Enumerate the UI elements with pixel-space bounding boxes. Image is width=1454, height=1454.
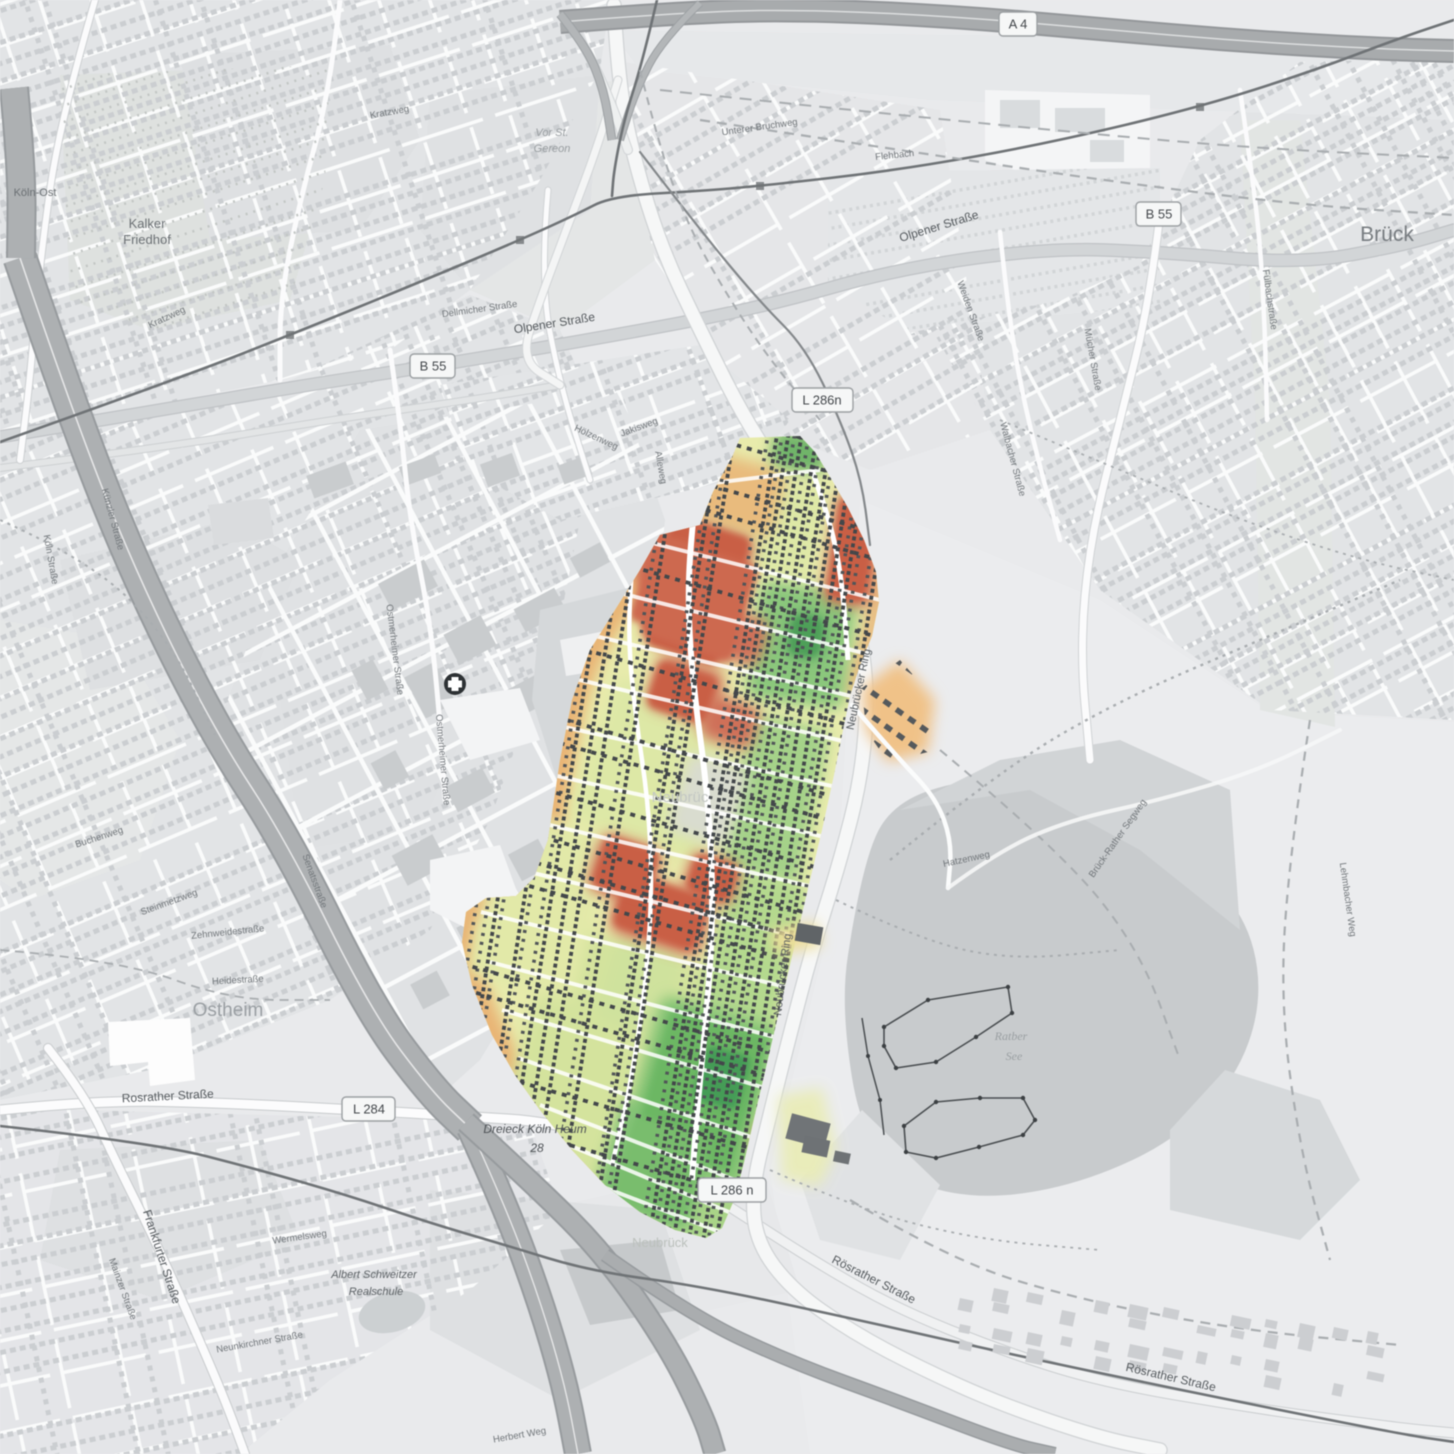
svg-text:B 55: B 55 <box>420 359 447 374</box>
svg-text:28: 28 <box>529 1141 544 1155</box>
svg-text:A 4: A 4 <box>1009 17 1028 32</box>
svg-text:Köln-Ost: Köln-Ost <box>14 187 57 199</box>
svg-text:L 286n: L 286n <box>802 393 841 408</box>
svg-text:Dreieck Köln Heum: Dreieck Köln Heum <box>483 1122 586 1136</box>
svg-text:Neubrück: Neubrück <box>632 1235 688 1250</box>
svg-text:Gereon: Gereon <box>534 143 571 155</box>
svg-text:L 286 n: L 286 n <box>711 1183 754 1198</box>
svg-text:Ratber: Ratber <box>994 1029 1028 1043</box>
svg-text:B 55: B 55 <box>1146 207 1173 222</box>
svg-text:Vor St.: Vor St. <box>535 127 568 139</box>
svg-text:Albert Schweitzer: Albert Schweitzer <box>330 1269 418 1281</box>
svg-text:Neubrüc: Neubrüc <box>652 789 709 806</box>
svg-text:See: See <box>1006 1049 1023 1063</box>
svg-text:L 284: L 284 <box>353 1102 385 1117</box>
svg-text:Ostheim: Ostheim <box>193 1000 264 1021</box>
svg-text:Realschule: Realschule <box>349 1286 403 1298</box>
svg-text:Kalker: Kalker <box>129 216 167 231</box>
svg-text:Brück: Brück <box>1360 223 1414 246</box>
svg-text:Friedhof: Friedhof <box>123 232 171 247</box>
